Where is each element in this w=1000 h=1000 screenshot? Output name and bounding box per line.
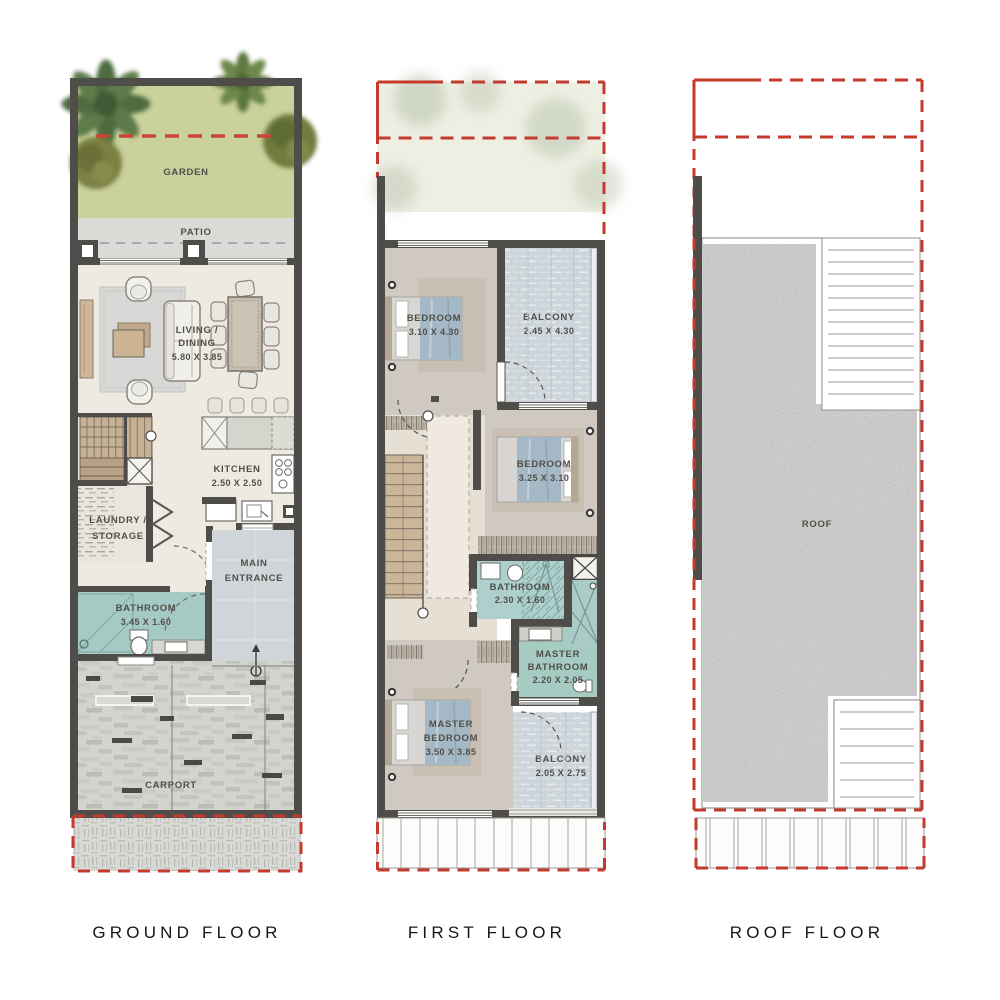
svg-text:3.50 X 3.85: 3.50 X 3.85 xyxy=(426,747,476,757)
svg-text:2.20 X 2.05: 2.20 X 2.05 xyxy=(533,675,583,685)
svg-text:2.45 X 4.30: 2.45 X 4.30 xyxy=(524,326,574,336)
svg-text:2.50 X 2.50: 2.50 X 2.50 xyxy=(212,478,262,488)
svg-text:GARDEN: GARDEN xyxy=(163,167,208,178)
svg-text:STORAGE: STORAGE xyxy=(92,531,144,542)
svg-text:BALCONY: BALCONY xyxy=(523,312,575,323)
svg-text:LIVING /: LIVING / xyxy=(176,325,219,336)
svg-text:PATIO: PATIO xyxy=(180,227,211,238)
svg-text:3.45 X 1.60: 3.45 X 1.60 xyxy=(121,617,171,627)
svg-text:3.10 X 4.30: 3.10 X 4.30 xyxy=(409,327,459,337)
svg-text:ROOF: ROOF xyxy=(802,519,832,530)
svg-text:LAUNDRY /: LAUNDRY / xyxy=(89,515,147,526)
svg-text:2.30 X 1.60: 2.30 X 1.60 xyxy=(495,595,545,605)
svg-text:MASTER: MASTER xyxy=(429,719,473,730)
svg-text:BATHROOM: BATHROOM xyxy=(490,582,551,593)
svg-text:BATHROOM: BATHROOM xyxy=(528,662,589,673)
svg-text:MAIN: MAIN xyxy=(240,558,267,569)
svg-text:ENTRANCE: ENTRANCE xyxy=(225,573,283,584)
svg-text:MASTER: MASTER xyxy=(536,649,580,660)
svg-text:CARPORT: CARPORT xyxy=(145,780,197,791)
svg-text:DINING: DINING xyxy=(178,338,215,349)
svg-text:KITCHEN: KITCHEN xyxy=(213,464,260,475)
svg-text:BEDROOM: BEDROOM xyxy=(517,459,572,470)
svg-text:3.25 X 3.10: 3.25 X 3.10 xyxy=(519,473,569,483)
svg-text:BEDROOM: BEDROOM xyxy=(407,313,462,324)
svg-text:GROUND FLOOR: GROUND FLOOR xyxy=(92,923,281,942)
svg-text:5.80 X 3.85: 5.80 X 3.85 xyxy=(172,352,222,362)
svg-text:BALCONY: BALCONY xyxy=(535,754,587,765)
svg-text:BATHROOM: BATHROOM xyxy=(116,603,177,614)
svg-text:2.05 X 2.75: 2.05 X 2.75 xyxy=(536,768,586,778)
svg-text:FIRST FLOOR: FIRST FLOOR xyxy=(408,923,566,942)
svg-text:BEDROOM: BEDROOM xyxy=(424,733,479,744)
svg-text:ROOF FLOOR: ROOF FLOOR xyxy=(730,923,884,942)
